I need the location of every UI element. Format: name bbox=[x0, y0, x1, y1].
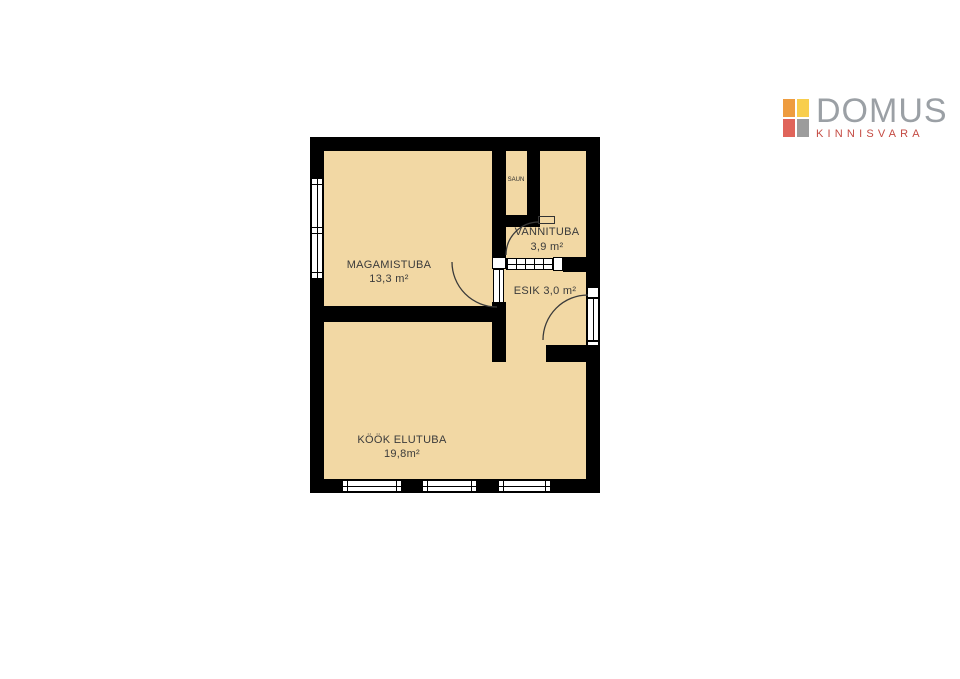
logo-tagline: KINNISVARA bbox=[816, 129, 948, 140]
wall-stub-bedroom bbox=[492, 302, 506, 362]
room-area: 19,8m² bbox=[322, 447, 482, 461]
room-label-magamistuba: MAGAMISTUBA 13,3 m² bbox=[309, 258, 469, 286]
logo-square-red bbox=[783, 119, 795, 137]
window-sill bbox=[498, 480, 504, 492]
floor-plan-page: MAGAMISTUBA 13,3 m² KÖÖK ELUTUBA 19,8m² … bbox=[0, 0, 960, 679]
window-sill bbox=[396, 480, 402, 492]
sauna-door-leaf bbox=[538, 216, 555, 224]
room-area: 3,9 m² bbox=[467, 240, 627, 255]
logo-text: DOMUS KINNISVARA bbox=[816, 94, 948, 140]
bedroom-door-post bbox=[492, 257, 506, 269]
room-name: ESIK bbox=[514, 285, 540, 297]
room-area: 3,0 m² bbox=[543, 285, 576, 297]
wall-top bbox=[310, 137, 600, 151]
logo-square-yellow bbox=[797, 99, 809, 117]
partition-post bbox=[553, 257, 563, 271]
room-name: VANNITUBA bbox=[467, 225, 627, 240]
window-divider bbox=[311, 227, 323, 234]
domus-grid-icon bbox=[783, 99, 809, 137]
wall-stub-esik bbox=[546, 345, 600, 362]
room-label-esik: ESIK 3,0 m² bbox=[465, 285, 625, 298]
logo-brand: DOMUS bbox=[816, 94, 948, 128]
room-label-kook-elutuba: KÖÖK ELUTUBA 19,8m² bbox=[322, 433, 482, 461]
window-sill bbox=[422, 480, 428, 492]
window-sill bbox=[545, 480, 551, 492]
entry-door-leaf bbox=[587, 298, 599, 341]
room-label-saun: SAUN bbox=[496, 177, 536, 184]
room-name: MAGAMISTUBA bbox=[309, 258, 469, 272]
domus-logo: DOMUS KINNISVARA bbox=[783, 94, 948, 140]
wall-bathroom-bottom-right bbox=[563, 257, 600, 272]
room-name: SAUN bbox=[508, 177, 525, 183]
window-sill bbox=[311, 178, 323, 185]
bathroom-partition bbox=[506, 258, 553, 270]
window-sill bbox=[342, 480, 348, 492]
kitchen-window bbox=[422, 480, 477, 492]
logo-square-orange bbox=[783, 99, 795, 117]
window-sill bbox=[471, 480, 477, 492]
room-label-vannituba: VANNITUBA 3,9 m² bbox=[467, 225, 627, 255]
wall-bedroom-kitchen bbox=[324, 306, 492, 322]
kitchen-window bbox=[498, 480, 551, 492]
logo-square-gray bbox=[797, 119, 809, 137]
kitchen-window bbox=[342, 480, 402, 492]
room-area: 13,3 m² bbox=[309, 272, 469, 286]
room-name: KÖÖK ELUTUBA bbox=[322, 433, 482, 447]
